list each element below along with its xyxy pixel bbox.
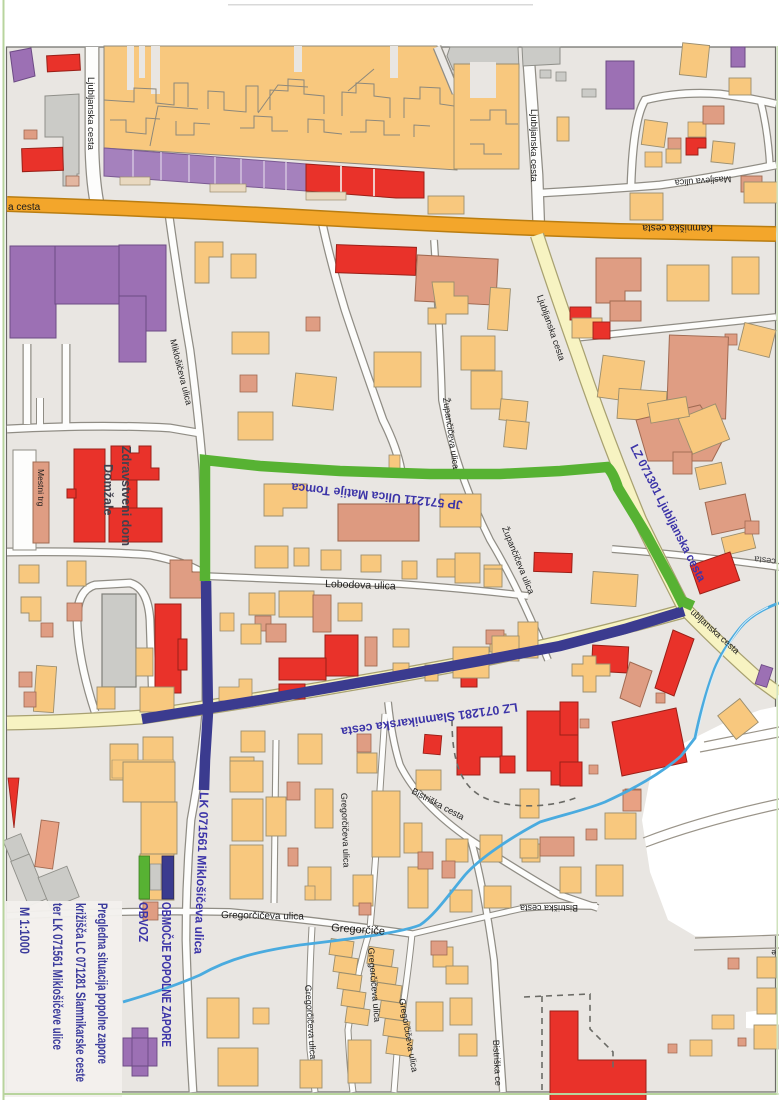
svg-text:OBMOČJE POPOLNE ZAPORE: OBMOČJE POPOLNE ZAPORE: [159, 902, 174, 1047]
svg-text:Mestni trg: Mestni trg: [36, 469, 46, 507]
svg-text:OBVOZ: OBVOZ: [136, 902, 151, 942]
svg-text:Bistriška cesta: Bistriška cesta: [520, 903, 578, 913]
svg-text:Lobodova ulica: Lobodova ulica: [325, 578, 396, 592]
svg-text:a cesta: a cesta: [8, 202, 41, 213]
svg-text:e: e: [771, 948, 776, 958]
svg-text:Gregorčičeva ulica: Gregorčičeva ulica: [221, 910, 304, 922]
svg-text:Ljubljanska cesta: Ljubljanska cesta: [528, 109, 539, 183]
svg-text:M 1:1000: M 1:1000: [17, 907, 32, 954]
svg-text:Ljubljanska cesta: Ljubljanska cesta: [85, 77, 96, 151]
svg-text:Zdravstveni dom: Zdravstveni dom: [119, 446, 133, 546]
svg-text:ter LK 071561 Miklošičeve ulic: ter LK 071561 Miklošičeve ulice: [50, 903, 65, 1050]
svg-text:Domžale: Domžale: [101, 464, 115, 515]
svg-text:Kamniška cesta: Kamniška cesta: [642, 222, 713, 233]
svg-text:križišča LC 071281 Slamnikarsk: križišča LC 071281 Slamnikarske ceste: [73, 903, 88, 1082]
svg-text:Pregledna situacija popolne za: Pregledna situacija popolne zapore: [95, 903, 110, 1064]
